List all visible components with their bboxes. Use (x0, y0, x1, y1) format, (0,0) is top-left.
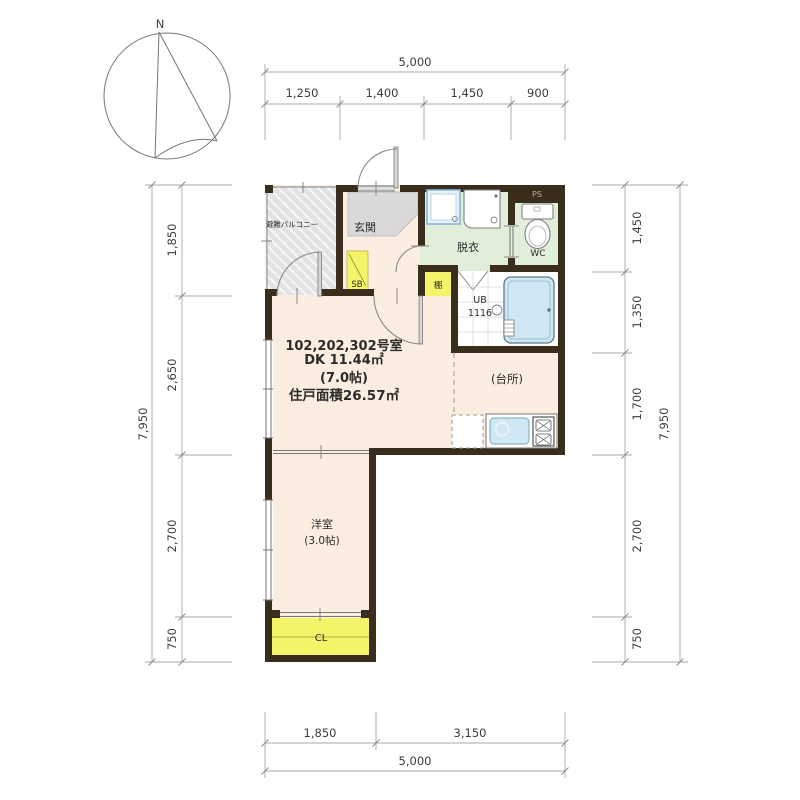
dk-window (263, 340, 273, 438)
kitchen-counter (486, 414, 557, 448)
bath-step (504, 320, 514, 336)
western-room-window (263, 500, 273, 600)
north-label: N (156, 17, 165, 31)
dim-bottom-seg1: 1,850 (304, 726, 337, 740)
closet-label: CL (315, 633, 328, 644)
unit-bath-label: UB (473, 295, 486, 306)
washing-machine-pan (427, 190, 460, 224)
dimension-chain-right: 7,950 1,450 1,350 1,700 2,700 750 (592, 182, 688, 666)
wc-label: WC (530, 249, 545, 259)
dim-right-total: 7,950 (657, 408, 671, 441)
dim-left-total: 7,950 (136, 408, 150, 441)
unit-dk-area: DK 11.44㎡ (304, 352, 384, 368)
dim-right-seg1: 1,450 (630, 212, 644, 245)
dim-right-seg3: 1,700 (630, 388, 644, 421)
dim-top-seg1: 1,250 (286, 86, 319, 100)
unit-total-area: 住戸面積26.57㎡ (289, 387, 400, 404)
dim-top-seg3: 1,450 (451, 86, 484, 100)
balcony-label: 避難バルコニー (266, 219, 318, 229)
dim-left-seg3: 2,700 (165, 520, 179, 553)
shelf-label: 棚 (434, 280, 443, 291)
unit-bath-size-label: 1116 (468, 308, 492, 319)
floor-plan-page: N (0, 0, 800, 800)
entrance-label: 玄関 (354, 220, 376, 234)
floor-plan-drawing: N (0, 0, 800, 800)
western-room-size-label: (3.0帖) (304, 534, 339, 547)
stove (533, 417, 554, 446)
compass-north-indicator: N (104, 17, 230, 159)
vanity-unit (464, 190, 500, 228)
dim-right-seg4: 2,700 (630, 520, 644, 553)
dimension-chain-left: 7,950 1,850 2,650 2,700 750 (136, 182, 232, 666)
shoe-box-label: SB (351, 280, 362, 290)
dim-top-seg2: 1,400 (366, 86, 399, 100)
dim-top-total: 5,000 (399, 55, 432, 69)
unit-dk-tatami: (7.0帖) (320, 370, 368, 386)
dim-top-seg4: 900 (527, 86, 549, 100)
dim-bottom-total: 5,000 (399, 754, 432, 768)
dim-right-seg2: 1,350 (630, 296, 644, 329)
refrigerator-space (452, 415, 483, 448)
balcony-floor (266, 186, 340, 295)
dimension-chain-top: 5,000 1,250 1,400 1,450 900 (262, 55, 569, 140)
dim-left-seg2: 2,650 (165, 359, 179, 392)
dim-right-seg5: 750 (630, 628, 644, 650)
western-room-label: 洋室 (311, 517, 333, 531)
entrance-door (358, 147, 398, 196)
unit-room-numbers: 102,202,302号室 (285, 338, 402, 354)
toilet (522, 204, 553, 249)
bath-drain (492, 305, 502, 315)
dim-left-seg1: 1,850 (165, 224, 179, 257)
dressing-room-label: 脱衣 (457, 240, 479, 254)
kitchen-label: (台所) (491, 372, 523, 386)
dimension-chain-bottom: 1,850 3,150 5,000 (262, 712, 569, 778)
dim-left-seg4: 750 (165, 628, 179, 650)
pipe-space-label: PS (532, 190, 542, 199)
dim-bottom-seg2: 3,150 (454, 726, 487, 740)
